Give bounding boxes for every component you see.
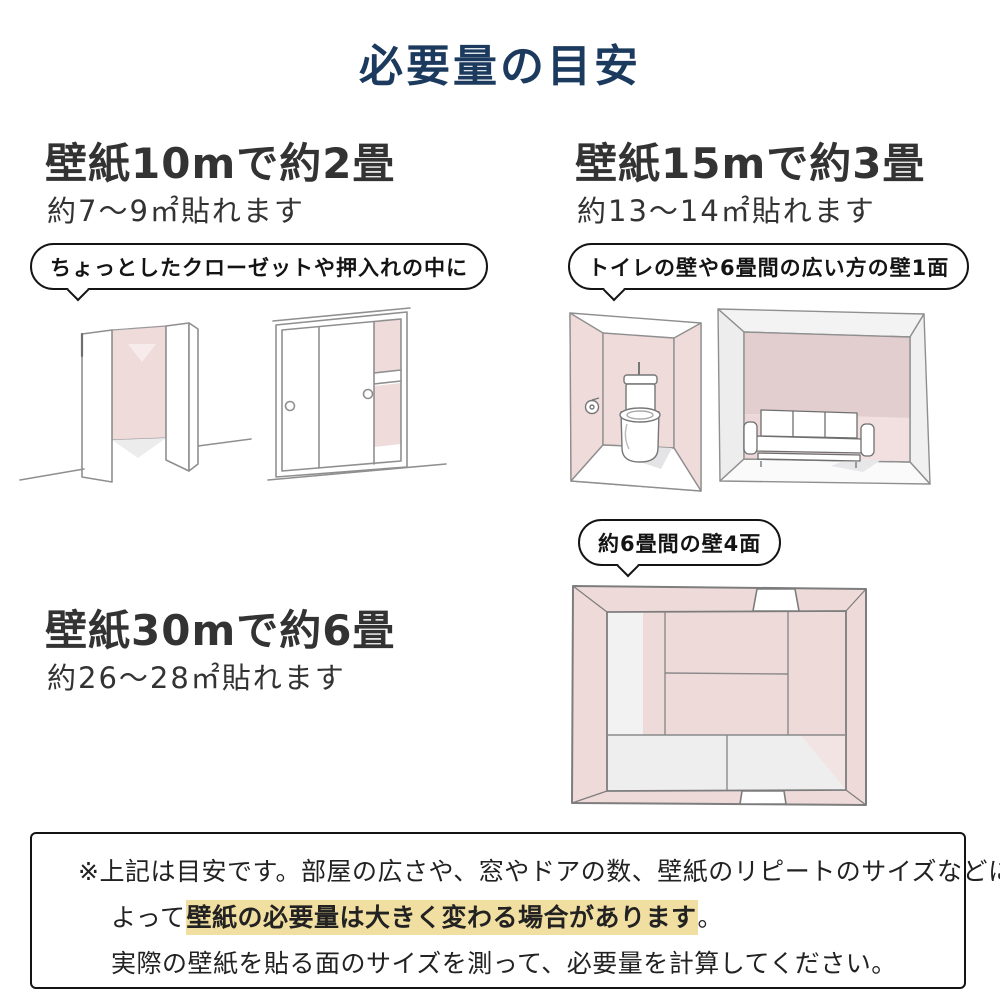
note-line-3: 実際の壁紙を貼る面のサイズを測って、必要量を計算してください。	[111, 941, 964, 987]
sofa-room-svg	[711, 296, 943, 492]
sofa-room-illustration	[711, 296, 943, 492]
speech-bubble-four-walls-label: 約6畳間の壁4面	[598, 528, 761, 558]
note-line-2: よって壁紙の必要量は大きく変わる場合があります。	[111, 895, 964, 941]
note-line-2-suffix: 。	[698, 903, 724, 932]
note-line-2-prefix: よって	[111, 903, 186, 932]
page-title: 必要量の目安	[0, 30, 1000, 94]
subheading-15m: 約13〜14㎡貼れます	[577, 188, 876, 230]
heading-10m: 壁紙10mで約2畳	[45, 130, 395, 191]
heading-15m: 壁紙15mで約3畳	[575, 130, 925, 191]
subheading-10m: 約7〜9㎡貼れます	[47, 188, 305, 230]
subheading-30m: 約26〜28㎡貼れます	[47, 655, 346, 697]
bubble-tail-down-icon	[617, 555, 640, 578]
note-line-1: ※上記は目安です。部屋の広さや、窓やドアの数、壁紙のリピートのサイズなどに	[78, 849, 964, 895]
note-box: ※上記は目安です。部屋の広さや、窓やドアの数、壁紙のリピートのサイズなどに よっ…	[30, 832, 966, 989]
toilet-room-illustration	[563, 299, 713, 495]
heading-30m: 壁紙30mで約6畳	[45, 597, 395, 658]
tatami-room-top-view-illustration	[561, 575, 879, 815]
speech-bubble-toilet: トイレの壁や6畳間の広い方の壁1面	[568, 243, 969, 290]
speech-bubble-four-walls: 約6畳間の壁4面	[578, 519, 781, 566]
note-highlight: 壁紙の必要量は大きく変わる場合があります	[186, 900, 698, 935]
speech-bubble-toilet-label: トイレの壁や6畳間の広い方の壁1面	[588, 252, 949, 282]
wallpaper-quantity-infographic: 必要量の目安 壁紙10mで約2畳 約7〜9㎡貼れます ちょっとしたクローゼットや…	[0, 0, 1000, 1000]
toilet-room-svg	[563, 299, 713, 495]
speech-bubble-closet: ちょっとしたクローゼットや押入れの中に	[30, 243, 488, 290]
closet-illustrations	[18, 294, 450, 524]
speech-bubble-closet-label: ちょっとしたクローゼットや押入れの中に	[50, 252, 468, 282]
closet-illustration-svg	[18, 294, 450, 524]
tatami-room-top-view-svg	[561, 575, 879, 815]
bubble-tail-down-icon	[603, 279, 626, 302]
